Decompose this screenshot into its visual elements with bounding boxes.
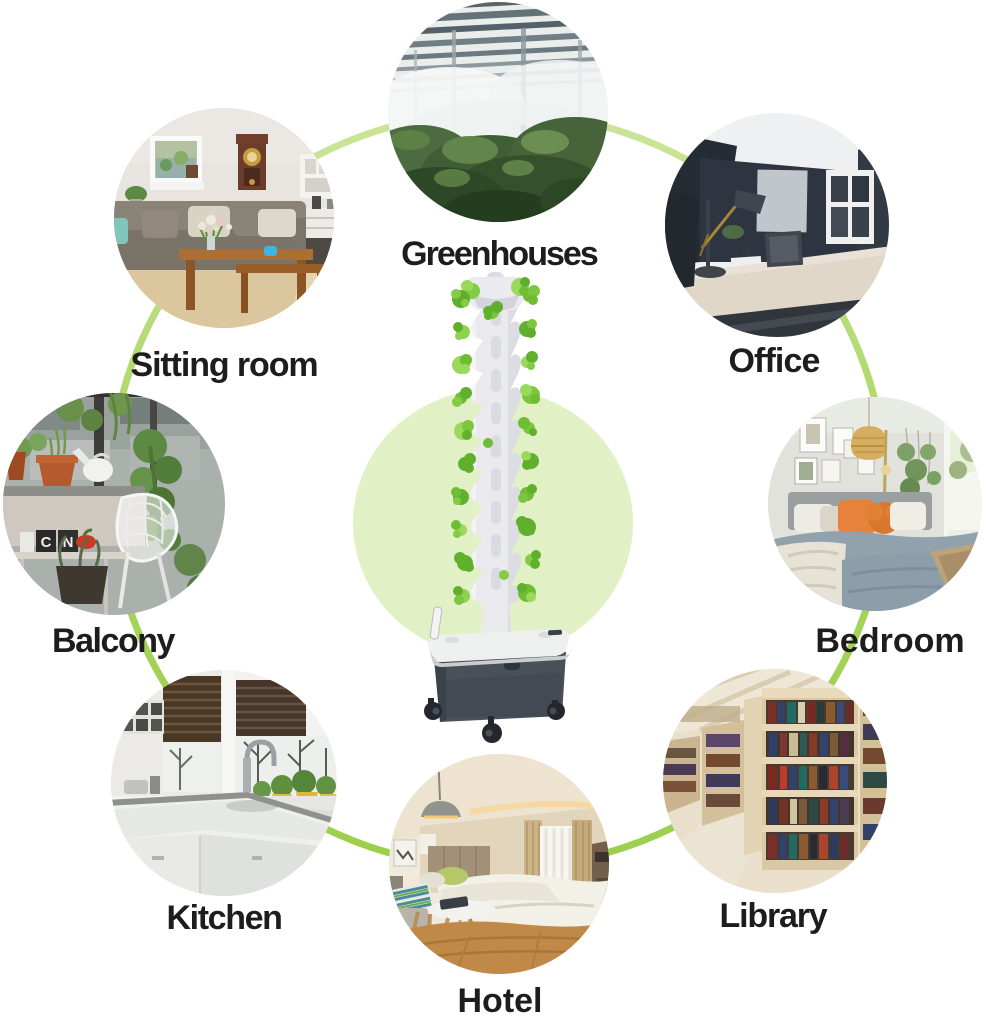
svg-text:C: C [41,534,52,551]
